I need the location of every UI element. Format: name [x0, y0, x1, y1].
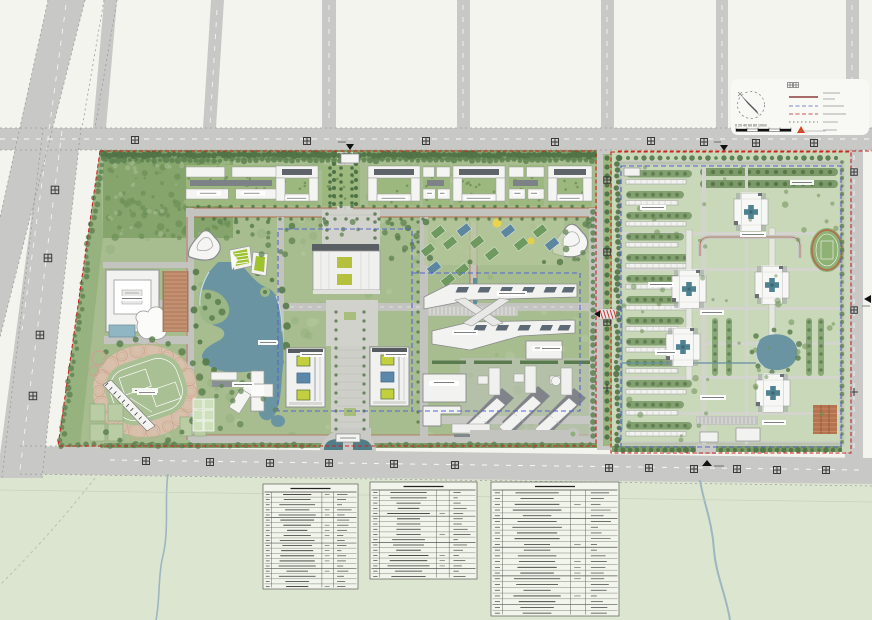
svg-text:0 20 40 60 80 100m: 0 20 40 60 80 100m	[735, 124, 767, 128]
